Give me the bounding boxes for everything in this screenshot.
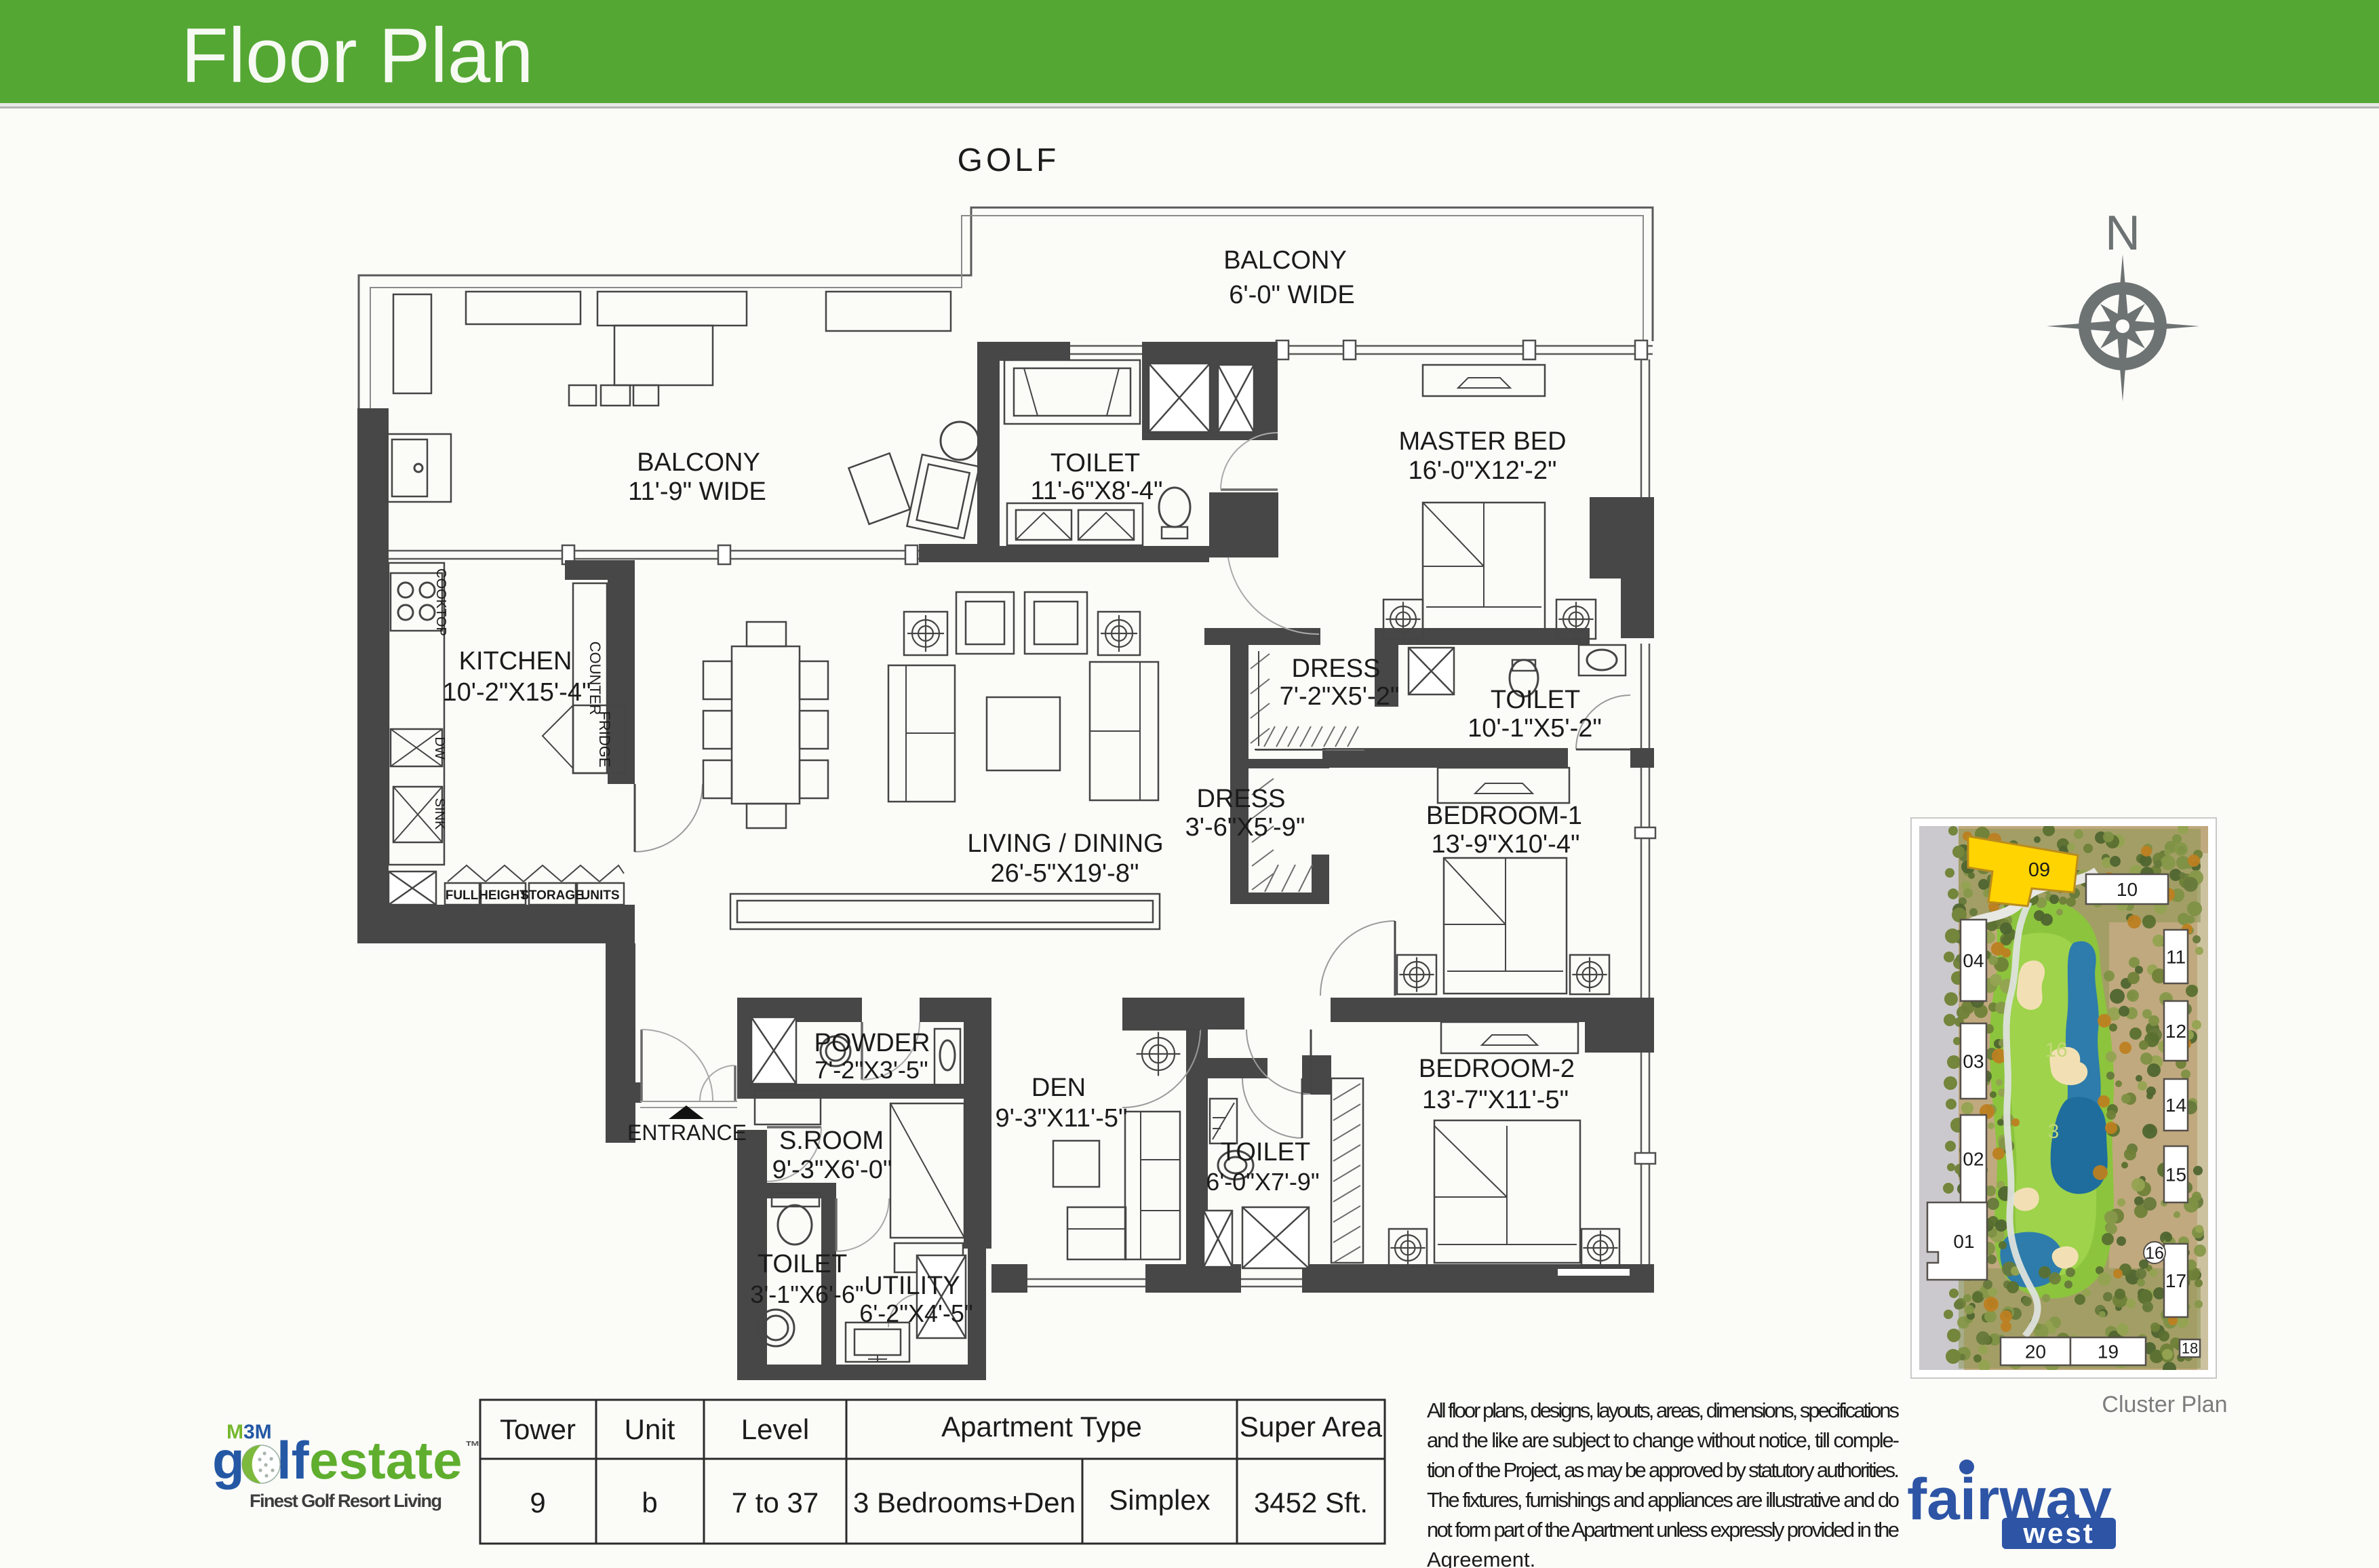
svg-text:UNITS: UNITS bbox=[581, 888, 620, 903]
svg-text:BALCONY: BALCONY bbox=[637, 448, 760, 477]
svg-text:12: 12 bbox=[2165, 1021, 2186, 1042]
svg-text:16'-0"X12'-2": 16'-0"X12'-2" bbox=[1409, 456, 1557, 485]
svg-text:Apartment Type: Apartment Type bbox=[941, 1411, 1142, 1443]
svg-text:10'-1"X5'-2": 10'-1"X5'-2" bbox=[1468, 714, 1602, 743]
svg-text:TOILET: TOILET bbox=[1491, 686, 1580, 714]
svg-text:02: 02 bbox=[1963, 1148, 1984, 1169]
svg-text:6'-0" WIDE: 6'-0" WIDE bbox=[1229, 281, 1354, 309]
svg-text:STORAGE: STORAGE bbox=[520, 888, 584, 903]
svg-text:Simplex: Simplex bbox=[1109, 1484, 1210, 1516]
svg-text:18: 18 bbox=[2182, 1340, 2198, 1357]
svg-text:POWDER: POWDER bbox=[814, 1029, 930, 1057]
svg-text:not form part of the Apartment: not form part of the Apartment unless ex… bbox=[1427, 1518, 1900, 1542]
svg-text:TOILET: TOILET bbox=[1221, 1138, 1310, 1167]
svg-text:Level: Level bbox=[741, 1413, 809, 1445]
svg-text:BEDROOM-1: BEDROOM-1 bbox=[1426, 802, 1582, 830]
svg-text:13'-7"X11'-5": 13'-7"X11'-5" bbox=[1422, 1086, 1569, 1114]
svg-text:Floor Plan: Floor Plan bbox=[181, 13, 534, 99]
svg-text:Tower: Tower bbox=[500, 1413, 576, 1445]
svg-text:14: 14 bbox=[2165, 1095, 2186, 1116]
svg-text:FULL: FULL bbox=[446, 888, 479, 903]
svg-text:ENTRANCE: ENTRANCE bbox=[627, 1120, 747, 1145]
svg-text:26'-5"X19'-8": 26'-5"X19'-8" bbox=[991, 859, 1139, 888]
svg-text:17: 17 bbox=[2165, 1270, 2186, 1291]
svg-text:9'-3"X11'-5": 9'-3"X11'-5" bbox=[996, 1104, 1128, 1133]
svg-text:lf: lf bbox=[277, 1430, 310, 1490]
svg-text:DRESS: DRESS bbox=[1292, 654, 1381, 683]
svg-text:7 to 37: 7 to 37 bbox=[732, 1487, 819, 1518]
svg-text:9: 9 bbox=[530, 1487, 545, 1518]
svg-text:11: 11 bbox=[2166, 946, 2186, 967]
svg-text:BEDROOM-2: BEDROOM-2 bbox=[1419, 1055, 1575, 1083]
svg-text:10'-2"X15'-4": 10'-2"X15'-4" bbox=[443, 678, 591, 707]
svg-text:11'-6"X8'-4": 11'-6"X8'-4" bbox=[1031, 477, 1163, 505]
svg-text:tion of the Project, as may be: tion of the Project, as may be approved … bbox=[1427, 1458, 1900, 1482]
svg-text:KITCHEN: KITCHEN bbox=[459, 647, 572, 675]
svg-text:10: 10 bbox=[2117, 879, 2138, 900]
svg-text:3'-6"X5'-9": 3'-6"X5'-9" bbox=[1185, 813, 1305, 842]
svg-text:09: 09 bbox=[2028, 859, 2050, 881]
svg-text:6'-2"X4'-5": 6'-2"X4'-5" bbox=[859, 1299, 972, 1327]
svg-text:LIVING / DINING: LIVING / DINING bbox=[967, 829, 1163, 858]
svg-text:SINK: SINK bbox=[432, 798, 447, 830]
svg-text:Unit: Unit bbox=[625, 1413, 675, 1445]
svg-text:7'-2"X3'-5": 7'-2"X3'-5" bbox=[814, 1056, 928, 1084]
svg-text:13'-9"X10'-4": 13'-9"X10'-4" bbox=[1432, 830, 1580, 859]
svg-text:MASTER BED: MASTER BED bbox=[1398, 427, 1566, 456]
svg-text:TOILET: TOILET bbox=[758, 1250, 847, 1278]
svg-text:16: 16 bbox=[2045, 1039, 2067, 1061]
svg-text:west: west bbox=[2022, 1517, 2094, 1549]
svg-text:BALCONY: BALCONY bbox=[1223, 246, 1347, 275]
svg-text:Cluster Plan: Cluster Plan bbox=[2102, 1392, 2227, 1417]
svg-text:6'-0"X7'-9": 6'-0"X7'-9" bbox=[1206, 1168, 1319, 1196]
svg-text:Finest Golf Resort Living: Finest Golf Resort Living bbox=[250, 1491, 442, 1511]
svg-text:S.ROOM: S.ROOM bbox=[779, 1126, 884, 1155]
svg-text:3'-1"X6'-6": 3'-1"X6'-6" bbox=[750, 1280, 863, 1308]
svg-text:and the like are subject to ch: and the like are subject to change witho… bbox=[1427, 1428, 1900, 1452]
svg-text:estate: estate bbox=[309, 1430, 462, 1490]
svg-text:3: 3 bbox=[2048, 1120, 2060, 1143]
svg-text:All floor plans, designs, layo: All floor plans, designs, layouts, areas… bbox=[1427, 1398, 1900, 1422]
svg-text:DRESS: DRESS bbox=[1197, 785, 1286, 813]
svg-text:™: ™ bbox=[465, 1438, 480, 1455]
svg-text:COOKTOP: COOKTOP bbox=[433, 568, 448, 636]
svg-text:UTILITY: UTILITY bbox=[864, 1272, 960, 1300]
svg-text:7'-2"X5'-2": 7'-2"X5'-2" bbox=[1280, 682, 1400, 711]
svg-text:COUNTER: COUNTER bbox=[587, 642, 604, 716]
svg-text:b: b bbox=[642, 1487, 657, 1518]
svg-text:g: g bbox=[212, 1430, 245, 1490]
svg-text:03: 03 bbox=[1963, 1051, 1984, 1072]
svg-text:FRIDGE: FRIDGE bbox=[596, 711, 613, 767]
svg-text:20: 20 bbox=[2025, 1341, 2046, 1362]
svg-text:GOLF: GOLF bbox=[958, 142, 1060, 178]
svg-text:01: 01 bbox=[1953, 1231, 1974, 1252]
svg-text:Agreement.: Agreement. bbox=[1427, 1548, 1535, 1568]
svg-text:3 Bedrooms+Den: 3 Bedrooms+Den bbox=[853, 1487, 1076, 1518]
svg-text:DEN: DEN bbox=[1031, 1074, 1086, 1102]
svg-text:19: 19 bbox=[2098, 1341, 2119, 1362]
svg-text:TOILET: TOILET bbox=[1050, 449, 1140, 477]
svg-text:N: N bbox=[2105, 206, 2140, 260]
svg-text:16: 16 bbox=[2145, 1244, 2164, 1263]
svg-text:04: 04 bbox=[1963, 950, 1984, 971]
svg-text:11'-9" WIDE: 11'-9" WIDE bbox=[628, 477, 766, 506]
svg-text:15: 15 bbox=[2165, 1164, 2186, 1185]
svg-text:9'-3"X6'-0": 9'-3"X6'-0" bbox=[772, 1156, 892, 1184]
svg-text:Super Area: Super Area bbox=[1240, 1411, 1383, 1443]
svg-text:3452 Sft.: 3452 Sft. bbox=[1254, 1487, 1368, 1518]
svg-text:DW: DW bbox=[432, 737, 447, 759]
svg-text:The fixtures, furnishings and: The fixtures, furnishings and appliances… bbox=[1427, 1488, 1900, 1512]
